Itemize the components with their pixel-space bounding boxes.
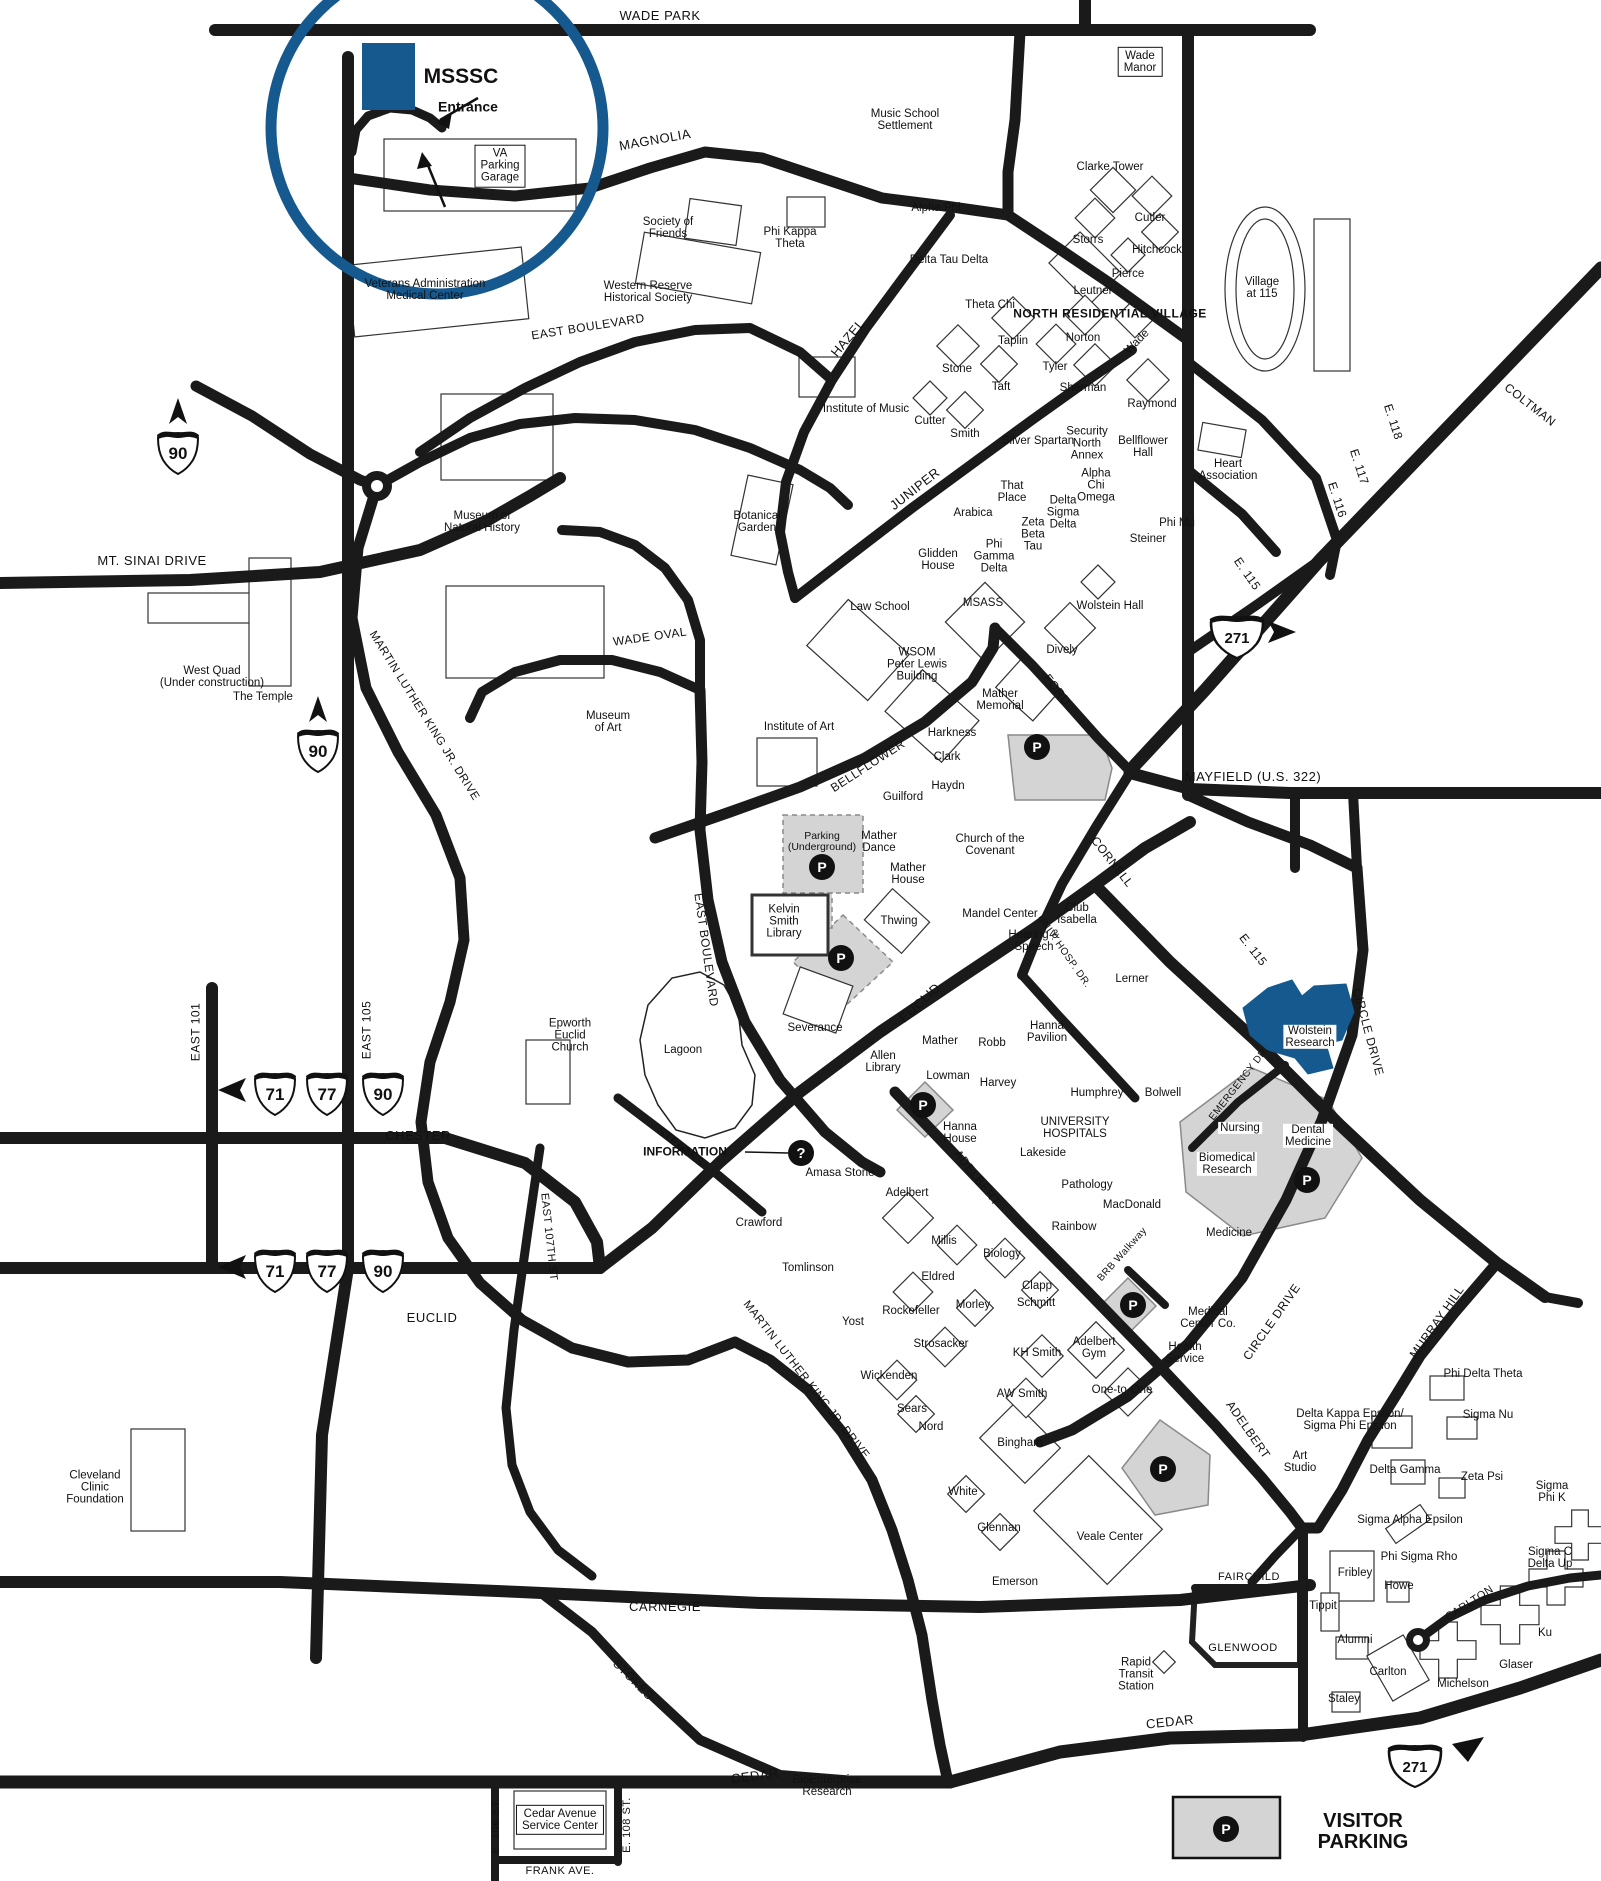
place-label: KH Smith — [1013, 1347, 1062, 1359]
place-label: Stone — [942, 363, 972, 375]
place-label: Michelson — [1437, 1678, 1489, 1690]
road-label: BELLFLOWER — [829, 737, 908, 794]
place-label: Dively — [1046, 644, 1077, 656]
place-label: Rockefeller — [882, 1305, 940, 1317]
road-label: E. 115 — [1231, 555, 1263, 592]
place-label: Biomedical Research — [1197, 1152, 1257, 1176]
place-label: That Place — [998, 480, 1027, 504]
place-label: Smith — [950, 428, 979, 440]
road-label: E. 108 ST. — [622, 1797, 634, 1853]
place-label: Rapid Transit Station — [1118, 1657, 1154, 1694]
place-label: MSSSC — [424, 66, 499, 88]
place-label: Hanna House — [943, 1121, 977, 1145]
place-label: Sears — [897, 1403, 927, 1415]
road-label: EMERGENCY DR. — [1208, 1045, 1272, 1123]
place-label: Lagoon — [664, 1044, 702, 1056]
place-label: Robb — [978, 1037, 1006, 1049]
road-label: COLTMAN — [1502, 381, 1558, 429]
road-label: MT. SINAI DRIVE — [97, 554, 206, 568]
road-label: WADE OVAL — [612, 626, 688, 649]
place-label: Clark — [934, 751, 961, 763]
place-label: Wickenden — [861, 1370, 918, 1382]
place-label: Veale Center — [1077, 1531, 1144, 1543]
place-label: Yost — [842, 1316, 864, 1328]
place-label: Lowman — [926, 1070, 969, 1082]
place-label: UNIVERSITY HOSPITALS — [1040, 1116, 1109, 1140]
place-label: Delta Gamma — [1370, 1464, 1441, 1476]
place-label: Glennan — [977, 1522, 1020, 1534]
place-label: Guilford — [883, 791, 923, 803]
place-label: Mather — [922, 1035, 958, 1047]
map-labels: WADE PARKMAGNOLIAHAZELJUNIPEREAST BOULEV… — [0, 0, 1601, 1881]
place-label: Emerson — [992, 1576, 1038, 1588]
place-label: One-to-One — [1092, 1384, 1153, 1396]
road-label: NORTH RESIDENTIAL VILLAGE — [1013, 308, 1207, 321]
place-label: Schmitt — [1017, 1297, 1055, 1309]
place-label: Mather House — [890, 862, 926, 886]
place-label: Pierce — [1112, 268, 1145, 280]
place-label: WSOM Peter Lewis Building — [887, 647, 947, 684]
road-label: CIRCLE DRIVE — [1241, 1281, 1303, 1362]
place-label: Kelvin Smith Library — [766, 904, 801, 941]
place-label: Tyler — [1043, 361, 1068, 373]
place-label: Clarke Tower — [1077, 161, 1144, 173]
place-label: West Quad (Under construction) — [160, 665, 264, 689]
road-label: E. 115 — [1237, 932, 1270, 969]
place-label: Phi Mu — [1159, 517, 1195, 529]
place-label: Society of Friends — [643, 216, 694, 240]
place-label: Sigma C Delta Up — [1528, 1546, 1573, 1570]
place-label: Pathology — [1061, 1179, 1112, 1191]
place-label: Raymond — [1127, 398, 1176, 410]
place-label: Delta Tau Delta — [910, 254, 988, 266]
road-label: FORD — [1041, 672, 1073, 708]
place-label: Steiner — [1130, 533, 1166, 545]
place-label: Theta Chi — [965, 299, 1015, 311]
place-label: Nord — [919, 1421, 944, 1433]
place-label: Art Studio — [1284, 1450, 1317, 1474]
place-label: Cutler — [1135, 212, 1166, 224]
place-label: Wolstein Hall — [1077, 600, 1144, 612]
road-label: E. 117 — [1347, 448, 1370, 487]
road-label: HAZEL — [828, 317, 867, 360]
place-label: Storrs — [1073, 234, 1104, 246]
place-label: Glidden House — [918, 548, 958, 572]
place-label: Heart Association — [1199, 458, 1258, 482]
place-label: Mather Memorial — [976, 688, 1023, 712]
road-label: MAGNOLIA — [618, 127, 692, 153]
place-label: Rainbow — [1052, 1221, 1097, 1233]
place-label: Mandel Center — [962, 908, 1037, 920]
place-label: Hanna Pavilion — [1027, 1020, 1067, 1044]
road-label: JUNIPER — [887, 465, 942, 512]
place-label: Sigma Alpha Epsilon — [1357, 1514, 1462, 1526]
place-label: Botanical Garden — [733, 510, 780, 534]
place-label: Delta Kappa Epsilon/ Sigma Phi Epsilon — [1296, 1408, 1403, 1432]
place-label: Silver Spartan — [1002, 435, 1074, 447]
road-label: EUCLID — [407, 1311, 458, 1325]
place-label: Security North Annex — [1066, 426, 1108, 463]
place-label: Haydn — [931, 780, 964, 792]
place-label: Crawford — [736, 1217, 783, 1229]
road-label: EAST BOULEVARD — [692, 892, 721, 1007]
place-label: Glaser — [1499, 1659, 1533, 1671]
place-label: Amasa Stone — [805, 1167, 874, 1179]
place-label: MacDonald — [1103, 1199, 1161, 1211]
road-label: CORNELL — [1088, 834, 1135, 889]
road-label: MAYFIELD (U.S. 322) — [1185, 770, 1321, 784]
place-label: Institute of Art — [764, 721, 834, 733]
place-label: BioEnterprise Research — [792, 1774, 861, 1798]
place-label: Lakeside — [1020, 1147, 1066, 1159]
place-label: Mather Dance — [861, 830, 897, 854]
place-label: MSASS — [963, 597, 1003, 609]
place-label: Severance — [788, 1022, 843, 1034]
road-label: CIRCLE DRIVE — [1350, 987, 1386, 1077]
place-label: Museum of Art — [586, 710, 630, 734]
road-label: E. 116 — [1325, 481, 1348, 520]
campus-map: 9090717790717790271271PPPPPPPP? WADE PAR… — [0, 0, 1601, 1881]
place-label: Leutner — [1073, 285, 1112, 297]
place-label: Carlton — [1369, 1666, 1406, 1678]
place-label: The Temple — [233, 691, 293, 703]
place-label: Sigma Phi K — [1536, 1480, 1569, 1504]
place-label: Epworth Euclid Church — [549, 1018, 591, 1055]
road-label: FAIRCHILD — [1218, 1572, 1280, 1584]
road-label: EUCLID — [897, 981, 943, 1026]
place-label: Biology — [983, 1248, 1021, 1260]
road-label: CEDAR — [730, 1766, 779, 1786]
place-label: Entrance — [438, 100, 498, 115]
road-label: CHESTER — [385, 1129, 451, 1143]
place-label: Strosacker — [914, 1338, 969, 1350]
place-label: Dental Medicine — [1283, 1124, 1333, 1148]
place-label: Cutter — [914, 415, 945, 427]
road-label: E. 106 ST. — [491, 1798, 503, 1854]
place-label: Alpha Phi — [911, 202, 960, 214]
place-label: Clapp — [1022, 1280, 1052, 1292]
place-label: Thwing — [880, 915, 917, 927]
place-label: VISITOR PARKING — [1318, 1811, 1409, 1853]
place-label: Bellflower Hall — [1118, 435, 1168, 459]
road-label: EAST 105 — [361, 1001, 374, 1059]
place-label: Ku — [1538, 1627, 1552, 1639]
place-label: Nursing — [1218, 1122, 1262, 1134]
place-label: Zeta Psi — [1461, 1471, 1503, 1483]
place-label: Taplin — [998, 335, 1028, 347]
place-label: Wade — [1122, 327, 1152, 357]
road-label: MURRAY HILL — [1407, 1284, 1466, 1361]
place-label: VA Parking Garage — [475, 145, 526, 188]
place-label: Eldred — [921, 1271, 954, 1283]
place-label: Law School — [850, 601, 909, 613]
place-label: Medicine — [1206, 1227, 1252, 1239]
place-label: Church of the Covenant — [955, 833, 1024, 857]
road-label: EAST 107TH ST — [538, 1193, 559, 1282]
place-label: Alpha Chi Omega — [1077, 468, 1115, 505]
place-label: Zeta Beta Tau — [1021, 517, 1045, 554]
place-label: Harkness — [928, 727, 977, 739]
place-label: Tippit — [1309, 1600, 1337, 1612]
place-label: Adelbert — [886, 1187, 929, 1199]
place-label: Music School Settlement — [871, 108, 939, 132]
place-label: Arabica — [954, 507, 993, 519]
place-label: Norton — [1066, 332, 1101, 344]
place-label: Club Isabella — [1057, 902, 1097, 926]
place-label: Hearing & Speech — [1008, 929, 1059, 953]
road-label: GLENWOOD — [1208, 1643, 1277, 1655]
place-label: Howe — [1384, 1580, 1413, 1592]
place-label: Phi Gamma Delta — [974, 539, 1015, 576]
place-label: Millis — [931, 1235, 957, 1247]
place-label: Village at 115 — [1245, 276, 1279, 300]
place-label: Sigma Nu — [1463, 1409, 1514, 1421]
place-label: Fribley — [1338, 1567, 1373, 1579]
place-label: Cedar Avenue Service Center — [516, 1805, 604, 1835]
place-label: Institute of Music — [823, 403, 909, 415]
place-label: Phi Kappa Theta — [763, 226, 816, 250]
road-label: BRB Walkway — [1096, 1226, 1150, 1284]
place-label: Tomlinson — [782, 1262, 834, 1274]
road-label: FRANK AVE. — [526, 1866, 595, 1878]
road-label: ADELBERT — [951, 1148, 1002, 1209]
place-label: Allen Library — [865, 1050, 900, 1074]
road-label: MARTIN LUTHER KING JR. DRIVE — [367, 629, 482, 803]
place-label: Western Reserve Historical Society — [604, 280, 693, 304]
road-label: CARNEGIE — [629, 1600, 701, 1614]
place-label: Health Service — [1166, 1341, 1204, 1365]
place-label: Sherman — [1060, 382, 1107, 394]
place-label: Bingham — [997, 1437, 1042, 1449]
place-label: Harvey — [980, 1077, 1016, 1089]
place-label: Museum of Natural History — [444, 510, 520, 534]
road-label: EAST 101 — [190, 1003, 203, 1061]
place-label: AW Smith — [997, 1388, 1048, 1400]
place-label: Parking (Underground) — [788, 831, 856, 853]
place-label: Morley — [956, 1299, 991, 1311]
place-label: Phi Delta Theta — [1443, 1368, 1522, 1380]
place-label: Wade Manor — [1118, 47, 1163, 77]
place-label: Medical Center Co. — [1180, 1306, 1236, 1330]
road-label: CEDAR — [1145, 1713, 1194, 1732]
road-label: E. 118 — [1381, 403, 1404, 442]
place-label: Alumni — [1337, 1634, 1372, 1646]
place-label: Adelbert Gym — [1073, 1336, 1116, 1360]
road-label: CARLTON — [1444, 1584, 1497, 1624]
place-label: Bolwell — [1145, 1087, 1181, 1099]
place-label: Hitchcock — [1132, 244, 1182, 256]
place-label: Delta Sigma Delta — [1047, 495, 1080, 532]
place-label: Phi Sigma Rho — [1381, 1551, 1458, 1563]
place-label: Humphrey — [1070, 1087, 1123, 1099]
road-label: EAST BOULEVARD — [530, 312, 645, 342]
place-label: Lerner — [1115, 973, 1148, 985]
road-label: WADE PARK — [619, 9, 700, 23]
place-label: Veterans Administration Medical Center — [365, 278, 486, 302]
place-label: Cleveland Clinic Foundation — [66, 1470, 124, 1507]
place-label: Wolstein Research — [1283, 1025, 1336, 1049]
road-label: ADELBERT — [1224, 1399, 1273, 1461]
place-label: Taft — [992, 381, 1011, 393]
place-label: Staley — [1328, 1693, 1360, 1705]
place-label: White — [948, 1486, 977, 1498]
place-label: INFORMATION — [643, 1146, 727, 1159]
road-label: STOKES — [610, 1657, 655, 1702]
